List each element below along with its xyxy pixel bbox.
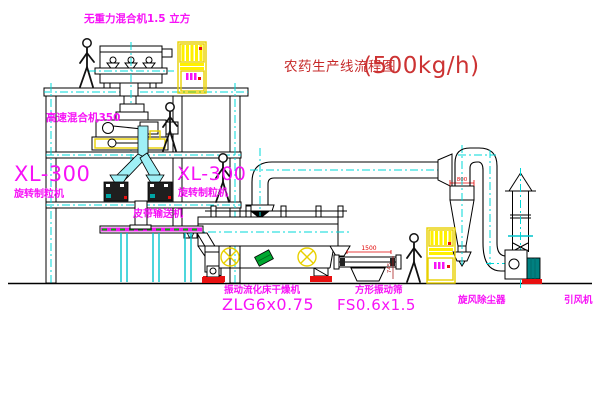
induced-draft-fan [505, 250, 542, 284]
control-cabinet-upper [178, 42, 206, 93]
label-fan: 引风机 [564, 294, 593, 306]
sieve-width-dimension: 1500 [361, 245, 376, 252]
label-cyclone: 旋风除尘器 [457, 294, 506, 306]
label-sieve-model: FS0.6x1.5 [337, 296, 416, 314]
label-granulator-left-model: XL-300 [14, 162, 90, 186]
exhaust-duct-main [246, 148, 448, 219]
label-granulator-left-name: 旋转制粒机 [13, 187, 64, 200]
rotary-granulator-right [148, 182, 172, 201]
label-belt-conveyor: 皮带输送机 [132, 207, 183, 220]
label-sieve-name: 方形振动筛 [355, 284, 403, 296]
label-granulator-right-model: XL-300 [177, 163, 246, 185]
person-figure [80, 39, 94, 87]
label-high-speed-mixer: 高速混合机350 [46, 111, 120, 124]
rotary-granulator-left [104, 182, 128, 201]
drawing-capacity: (500kg/h) [363, 53, 480, 79]
label-granulator-right-name: 旋转制粒机 [177, 186, 228, 199]
process-flow-drawing: 800 [0, 0, 600, 403]
control-cabinet-lower [427, 228, 455, 283]
label-gravity-mixer: 无重力混合机1.5 立方 [83, 12, 191, 25]
vibration-motor [255, 250, 274, 266]
diagram-canvas: 800 [0, 0, 600, 403]
label-dryer-model: ZLG6x0.75 [222, 295, 314, 314]
person-figure [407, 234, 421, 282]
sieve-height-dimension: 745 [387, 262, 393, 273]
